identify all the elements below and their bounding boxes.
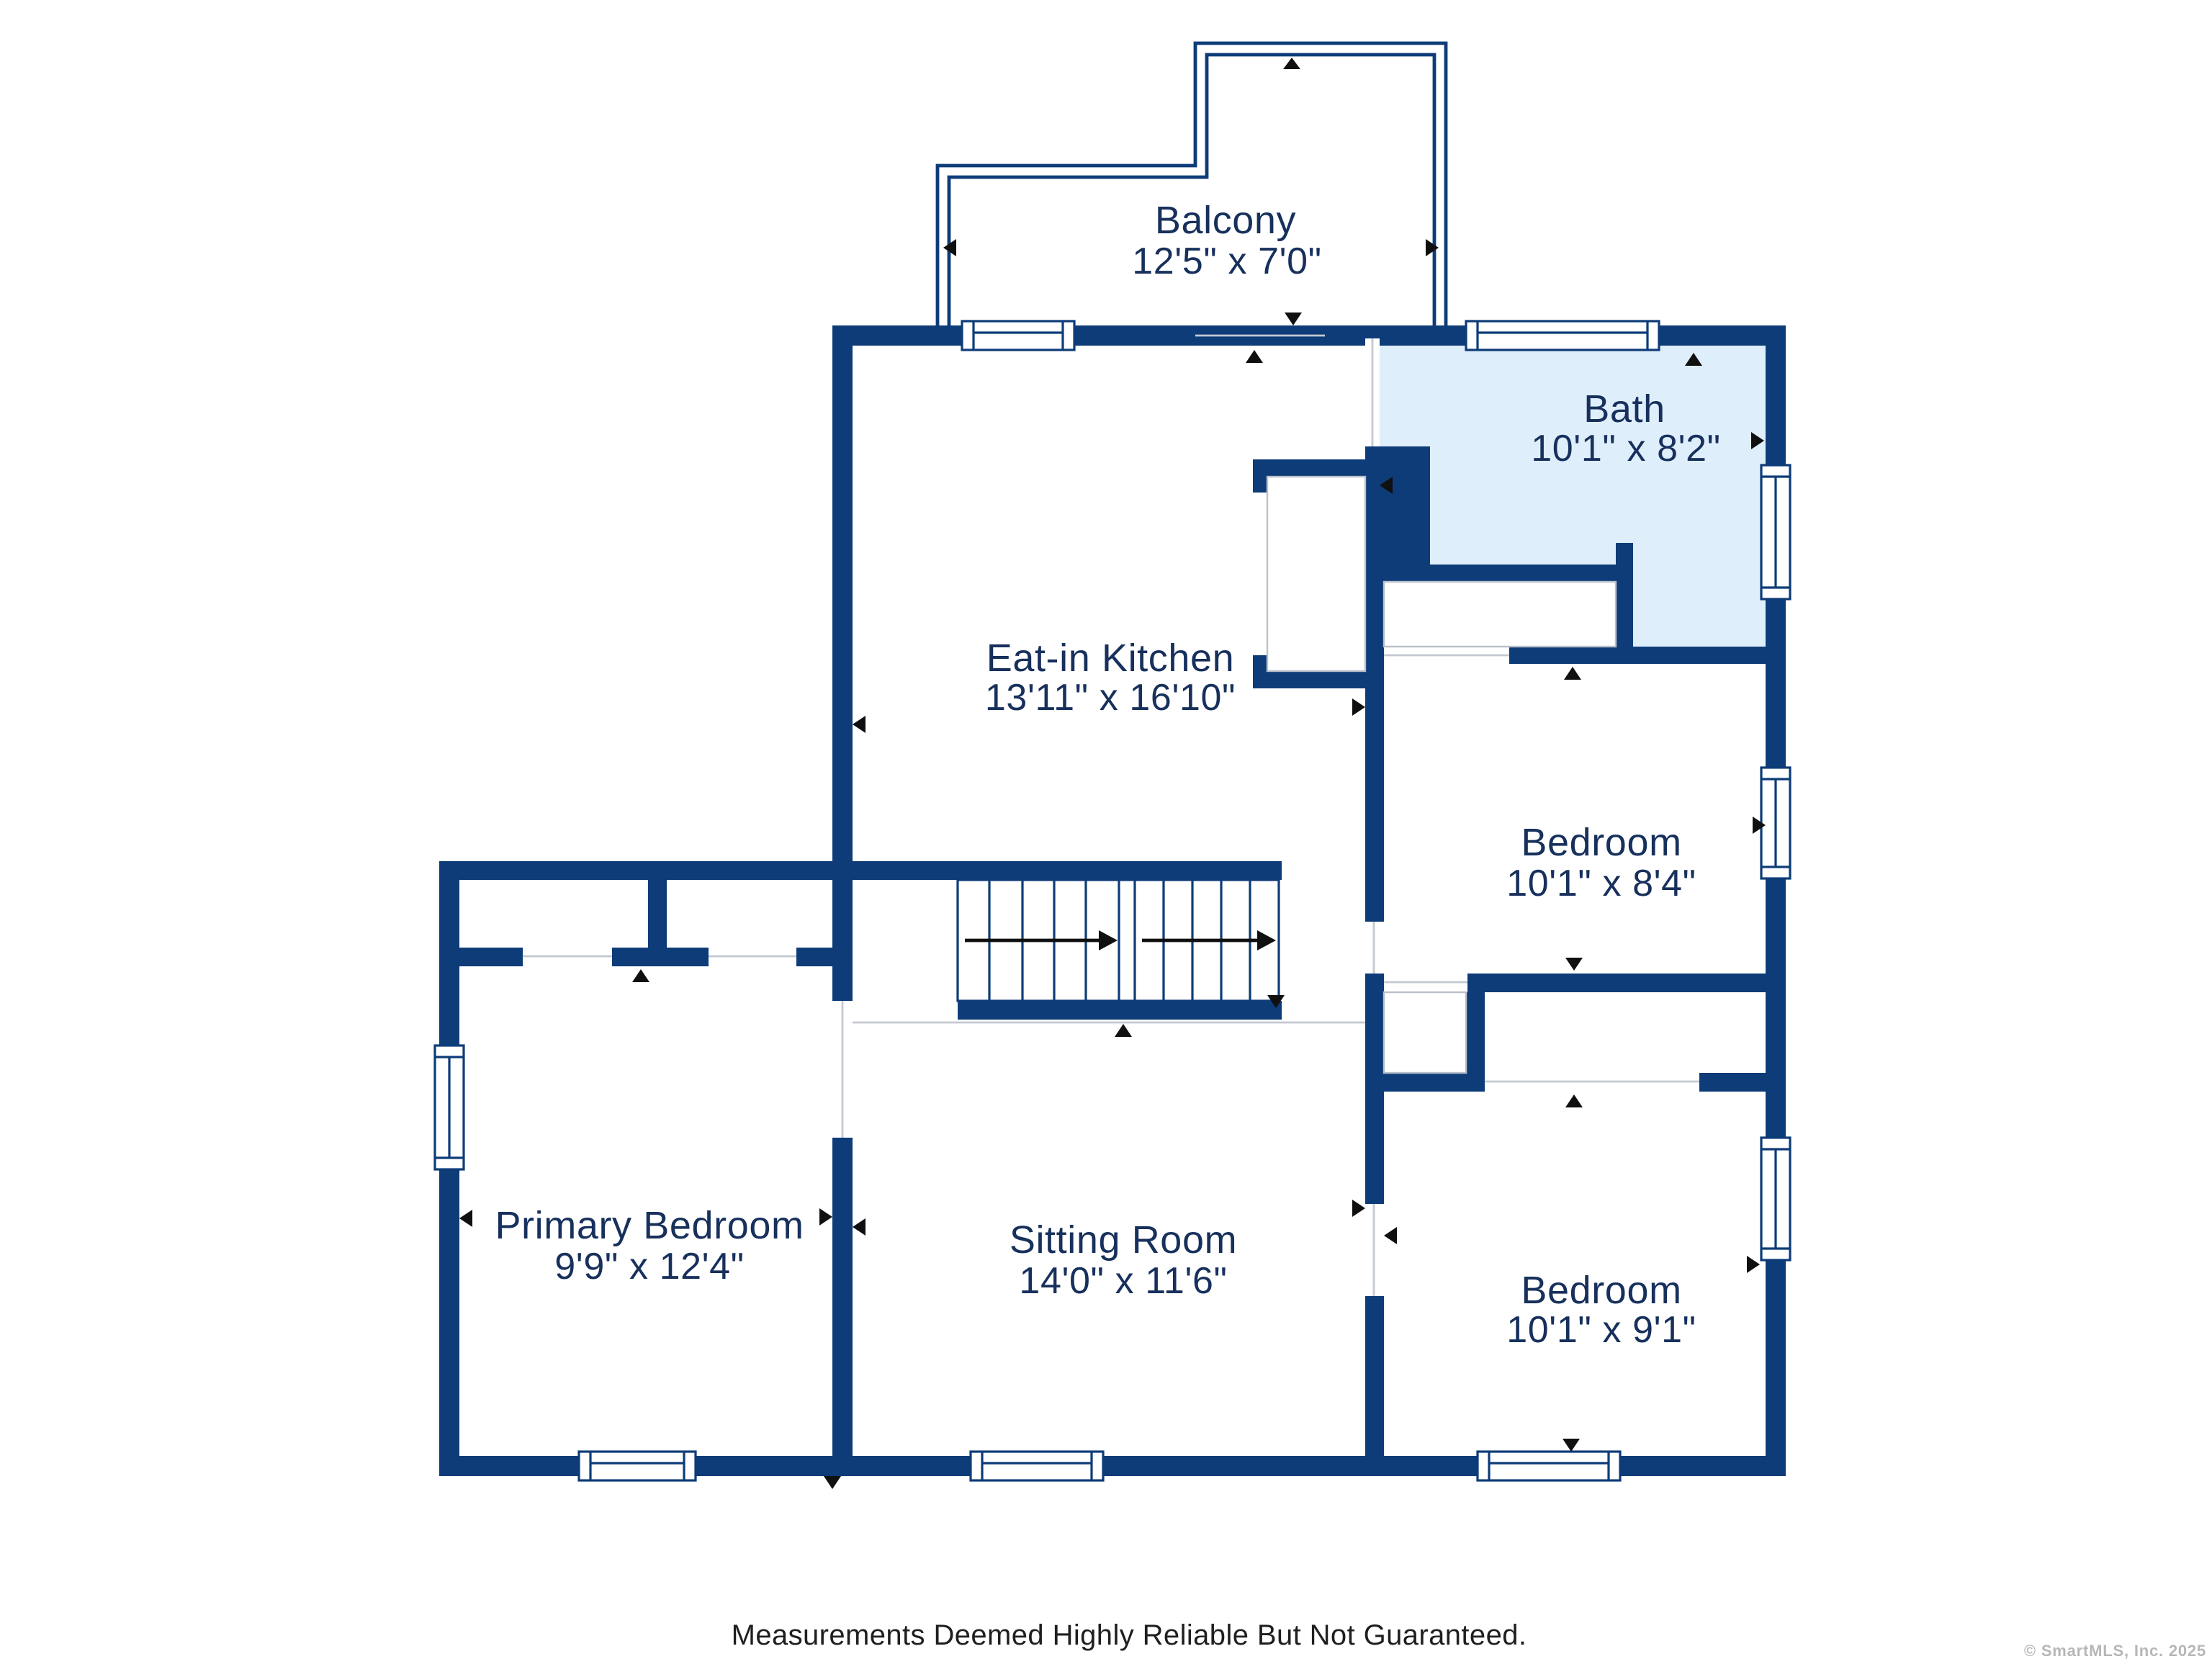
svg-text:13'11" x 16'10": 13'11" x 16'10": [985, 677, 1236, 719]
window-symbol: [962, 321, 1074, 350]
room-label-sitting-room: Sitting Room 14'0" x 11'6": [1010, 1218, 1237, 1302]
svg-text:Balcony: Balcony: [1155, 199, 1296, 242]
svg-text:Bath: Bath: [1583, 387, 1665, 431]
measure-arrow-icon: [459, 1210, 472, 1227]
stairs: [958, 880, 1279, 1001]
measure-arrow-icon: [1384, 1227, 1397, 1244]
measure-arrow-icon: [1426, 239, 1439, 256]
measure-arrow-icon: [853, 716, 866, 733]
measure-arrow-icon: [1563, 1439, 1580, 1452]
svg-text:Eat-in Kitchen: Eat-in Kitchen: [986, 637, 1235, 680]
measure-arrow-icon: [1747, 1256, 1760, 1273]
measure-arrow-icon: [1285, 313, 1302, 325]
svg-text:9'9" x 12'4": 9'9" x 12'4": [554, 1246, 744, 1287]
svg-text:10'1" x 8'4": 10'1" x 8'4": [1506, 863, 1696, 904]
window-symbol: [435, 1046, 464, 1169]
measure-arrow-icon: [632, 969, 649, 982]
window-symbol: [579, 1452, 696, 1480]
floor-plan-canvas: Balcony 12'5" x 7'0" Eat-in Kitchen 13'1…: [0, 0, 2212, 1659]
measure-arrow-icon: [819, 1208, 832, 1226]
window-symbol: [1466, 321, 1659, 350]
measure-arrow-icon: [1352, 1200, 1365, 1217]
window-symbol: [971, 1452, 1103, 1480]
measure-arrow-icon: [1352, 698, 1365, 716]
window-symbol: [1761, 465, 1790, 599]
svg-text:12'5" x 7'0": 12'5" x 7'0": [1132, 240, 1321, 282]
svg-text:10'1" x 8'2": 10'1" x 8'2": [1531, 428, 1720, 469]
room-label-bedroom-bottom: Bedroom 10'1" x 9'1": [1506, 1269, 1696, 1351]
window-symbol: [1761, 768, 1790, 878]
measure-arrow-icon: [1565, 958, 1583, 971]
room-label-kitchen: Eat-in Kitchen 13'11" x 16'10": [985, 637, 1236, 719]
svg-text:Sitting Room: Sitting Room: [1010, 1218, 1237, 1262]
measure-arrow-icon: [1283, 58, 1300, 69]
svg-text:10'1" x 9'1": 10'1" x 9'1": [1506, 1309, 1696, 1351]
measure-arrow-icon: [1246, 350, 1263, 363]
disclaimer-text: Measurements Deemed Highly Reliable But …: [732, 1619, 1527, 1651]
room-label-bedroom-top: Bedroom 10'1" x 8'4": [1506, 821, 1696, 904]
floor-plan-page: Balcony 12'5" x 7'0" Eat-in Kitchen 13'1…: [0, 0, 2212, 1659]
room-label-balcony: Balcony 12'5" x 7'0": [1132, 199, 1321, 282]
measure-arrow-icon: [824, 1476, 841, 1489]
svg-text:Bedroom: Bedroom: [1521, 821, 1681, 864]
balcony-outline: [938, 43, 1446, 325]
measure-arrow-icon: [1565, 1094, 1583, 1107]
measure-arrow-icon: [1564, 667, 1581, 680]
measure-arrow-icon: [1115, 1024, 1132, 1037]
measure-arrow-icon: [853, 1218, 866, 1236]
svg-text:Bedroom: Bedroom: [1521, 1269, 1681, 1312]
window-symbol: [1761, 1138, 1790, 1260]
copyright-text: © SmartMLS, Inc. 2025: [2024, 1642, 2206, 1659]
svg-text:Primary Bedroom: Primary Bedroom: [495, 1204, 804, 1247]
window-symbol: [1478, 1452, 1620, 1480]
svg-text:14'0" x 11'6": 14'0" x 11'6": [1019, 1260, 1227, 1302]
room-label-primary-bedroom: Primary Bedroom 9'9" x 12'4": [495, 1204, 804, 1287]
